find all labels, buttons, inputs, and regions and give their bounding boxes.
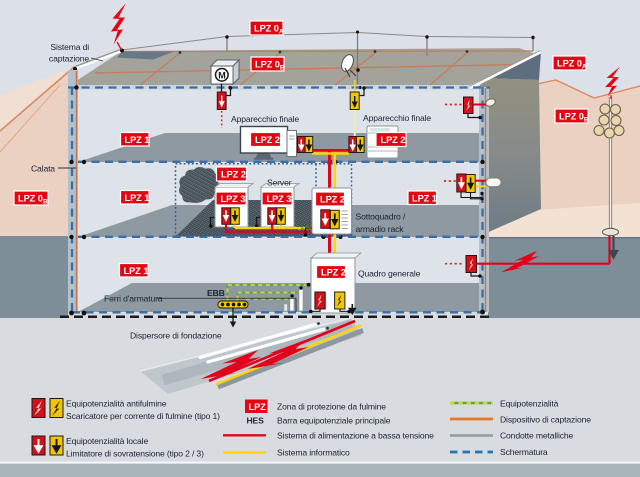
svg-text:Barra equipotenziale principal: Barra equipotenziale principale	[277, 416, 391, 426]
svg-text:Sistema di alimentazione a bas: Sistema di alimentazione a bassa tension…	[277, 431, 434, 441]
svg-text:M: M	[218, 70, 226, 80]
svg-text:Equipotenzialità antifulmine: Equipotenzialità antifulmine	[66, 399, 167, 409]
svg-text:Dispersore di fondazione: Dispersore di fondazione	[130, 331, 222, 341]
svg-text:Condotte metalliche: Condotte metalliche	[500, 431, 573, 441]
svg-text:Apparecchio finale: Apparecchio finale	[231, 114, 299, 124]
svg-text:Ferri d'armatura: Ferri d'armatura	[104, 294, 163, 304]
svg-text:Apparecchio finale: Apparecchio finale	[363, 113, 431, 123]
svg-text:LPZ 2: LPZ 2	[321, 268, 346, 278]
svg-text:LPZ: LPZ	[249, 402, 267, 412]
svg-text:LPZ 2: LPZ 2	[320, 195, 345, 205]
svg-text:LPZ 2: LPZ 2	[381, 135, 406, 145]
svg-text:LPZ 2: LPZ 2	[221, 170, 246, 180]
svg-text:Dispositivo di captazione: Dispositivo di captazione	[500, 415, 591, 425]
svg-text:LPZ 3: LPZ 3	[221, 194, 246, 204]
svg-text:LPZ 1: LPZ 1	[125, 135, 150, 145]
svg-text:LPZ 3: LPZ 3	[267, 194, 292, 204]
svg-text:Equipotenzialità locale: Equipotenzialità locale	[66, 436, 148, 446]
svg-text:LPZ 1: LPZ 1	[412, 193, 437, 203]
svg-text:Sistema informatico: Sistema informatico	[277, 448, 350, 458]
svg-text:HES: HES	[247, 416, 265, 426]
svg-text:LPZ 2: LPZ 2	[255, 135, 280, 145]
svg-text:Sottoquadro /: Sottoquadro /	[356, 212, 406, 222]
svg-text:Server: Server	[267, 178, 292, 188]
svg-text:captazione: captazione	[49, 54, 89, 64]
svg-text:Equipotenzialità: Equipotenzialità	[500, 399, 559, 409]
svg-text:Zona di protezione da fulmine: Zona di protezione da fulmine	[277, 402, 386, 412]
svg-text:Calata: Calata	[31, 164, 55, 174]
svg-text:Limitatore di sovratensione (t: Limitatore di sovratensione (tipo 2 / 3)	[66, 449, 204, 459]
svg-text:Quadro generale: Quadro generale	[358, 269, 421, 279]
svg-text:LPZ 1: LPZ 1	[125, 193, 150, 203]
svg-text:Schermatura: Schermatura	[500, 447, 548, 457]
svg-text:LPZ 1: LPZ 1	[124, 266, 149, 276]
svg-text:Scaricatore per corrente di fu: Scaricatore per corrente di fulmine (tip…	[66, 411, 220, 421]
svg-text:EBB: EBB	[207, 288, 225, 298]
svg-text:armadio rack: armadio rack	[356, 224, 405, 234]
svg-text:Sistema di: Sistema di	[50, 42, 89, 52]
